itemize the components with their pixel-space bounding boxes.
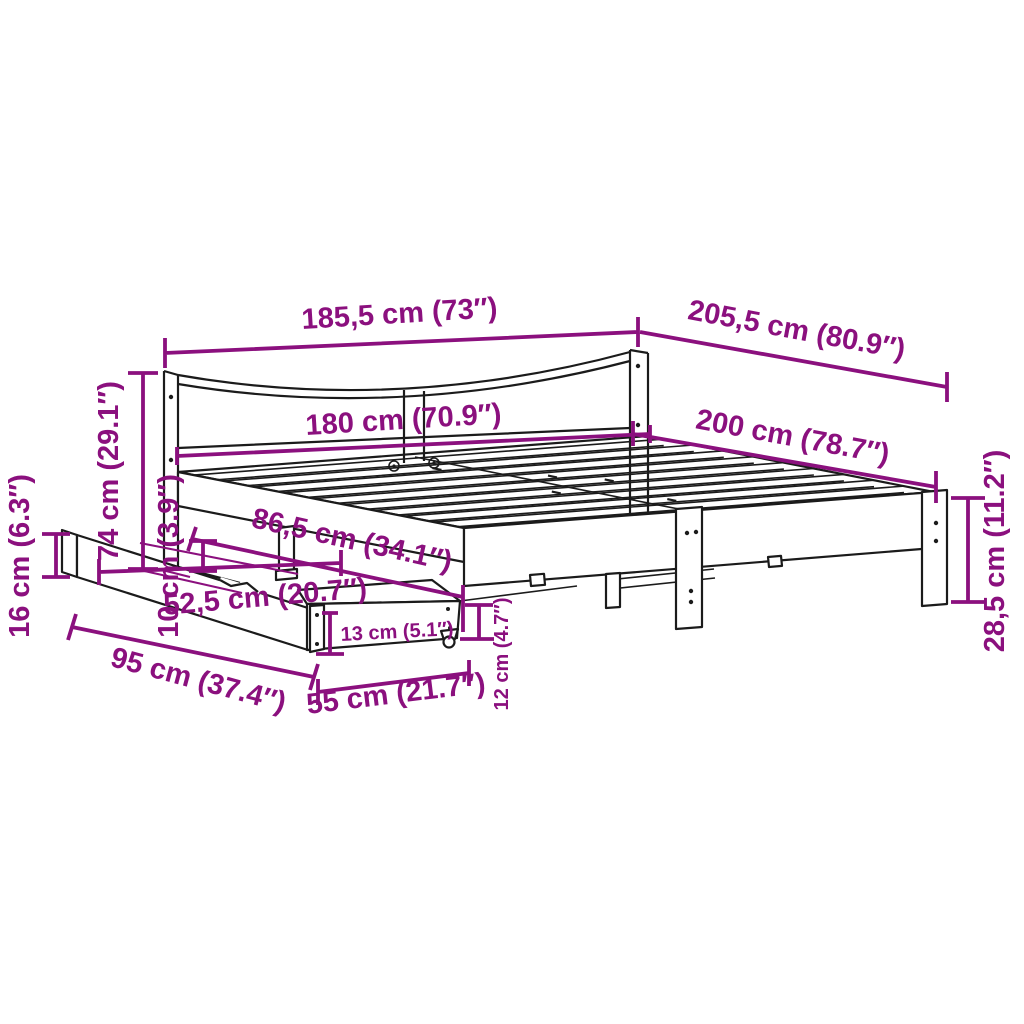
dimension-label: 16 cm (6.3″) [4,474,36,638]
dimension-205-5: 205,5 cm (80.9″) [640,294,947,402]
screw-dot-icon [169,395,173,399]
dimension-label: 205,5 cm (80.9″) [685,294,907,366]
dimension-28-5: 28,5 cm (11.2″) [951,450,1011,653]
bed-frame-drawing: 185,5 cm (73″) 205,5 cm (80.9″) 180 cm (… [0,0,1024,1024]
rail-clip [530,574,545,586]
middle-foot-leg [676,507,702,629]
screw-dot-icon [636,423,640,427]
screw-dot-icon [169,458,173,462]
drawer-side-end-cap [62,530,77,577]
dimension-label: 185,5 cm (73″) [301,292,499,336]
dimension-label: 12 cm (4.7″) [491,598,513,711]
screw-dot-icon [636,364,640,368]
dimension-55: 55 cm (21.7″) [305,660,487,721]
headboard-top-curve [178,352,630,390]
rear-leg [606,573,620,608]
dimension-185-5: 185,5 cm (73″) [165,292,638,368]
dimension-diagram: 185,5 cm (73″) 205,5 cm (80.9″) 180 cm (… [0,0,1024,1024]
dimension-label: 74 cm (29.1″) [93,381,125,561]
drawer-runner-line [460,586,577,601]
dimension-label: 28,5 cm (11.2″) [979,450,1011,653]
foot-corner-leg [922,490,947,606]
dimension-label: 55 cm (21.7″) [305,667,487,721]
dimension-label: 13 cm (5.1″) [340,618,454,646]
headboard-left-post-cap [164,371,178,375]
dimension-16: 16 cm (6.3″) [4,474,70,638]
rail-clip [768,556,782,567]
